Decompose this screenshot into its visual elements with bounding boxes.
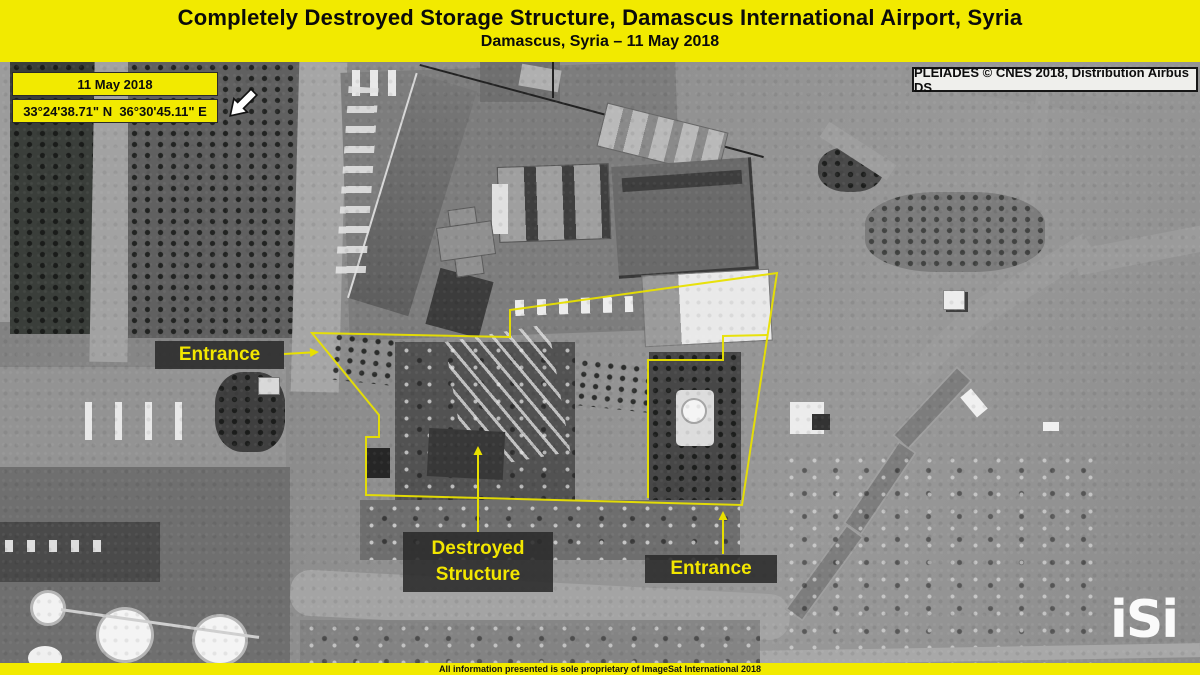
tank-circle <box>681 398 707 424</box>
coordinates-label: 33°24'38.71" N 36°30'45.11" E <box>12 99 218 123</box>
tank-farm-building <box>0 522 160 582</box>
white-hut <box>943 290 965 310</box>
isi-logo: iSi <box>1110 590 1177 650</box>
tank-farm-building-roof <box>5 540 115 552</box>
north-arrow-icon <box>226 78 268 120</box>
credit-text: PLEIADES © CNES 2018, Distribution Airbu… <box>914 65 1196 95</box>
destroyed-structure-text-line1: Destroyed <box>432 536 525 562</box>
main-road-seg3 <box>903 305 986 386</box>
footer-text: All information presented is sole propri… <box>439 664 761 674</box>
small-dark-building <box>427 428 505 480</box>
right-dark-mottle <box>865 192 1045 272</box>
destroyed-structure-text-line2: Structure <box>436 562 520 588</box>
white-annex <box>492 184 508 234</box>
destroyed-structure-label: Destroyed Structure <box>403 532 553 592</box>
entrance-bottom-label: Entrance <box>645 555 777 583</box>
imagery-credit-label: PLEIADES © CNES 2018, Distribution Airbu… <box>912 67 1198 92</box>
date-text: 11 May 2018 <box>77 77 152 92</box>
left-yard-trucks <box>85 402 205 440</box>
curve-road-seg1 <box>892 366 973 450</box>
fuel-tank-4 <box>28 646 62 663</box>
page-subtitle: Damascus, Syria – 11 May 2018 <box>0 33 1200 51</box>
entrance-bottom-text: Entrance <box>670 558 751 580</box>
header-banner: Completely Destroyed Storage Structure, … <box>0 0 1200 62</box>
fuel-tank-3 <box>192 614 248 663</box>
screenshot: Completely Destroyed Storage Structure, … <box>0 0 1200 675</box>
bright-warehouse <box>641 269 773 348</box>
right-debris-field <box>780 452 1110 663</box>
notch-building <box>367 448 390 478</box>
date-label: 11 May 2018 <box>12 72 218 96</box>
footer-bar: All information presented is sole propri… <box>0 663 1200 675</box>
fence-line-vertical <box>552 62 554 98</box>
white-car <box>1043 422 1059 431</box>
coordinates-text: 33°24'38.71" N 36°30'45.11" E <box>23 104 207 119</box>
page-title: Completely Destroyed Storage Structure, … <box>0 0 1200 31</box>
entrance-left-label: Entrance <box>155 341 284 369</box>
satellite-image: 11 May 2018 33°24'38.71" N 36°30'45.11" … <box>0 62 1200 663</box>
white-truck <box>960 389 987 418</box>
guard-hut <box>258 377 280 395</box>
entrance-left-text: Entrance <box>179 344 260 366</box>
three-buildings <box>497 163 612 243</box>
l-building-dark <box>812 414 830 430</box>
bottom-center-field <box>300 620 760 663</box>
